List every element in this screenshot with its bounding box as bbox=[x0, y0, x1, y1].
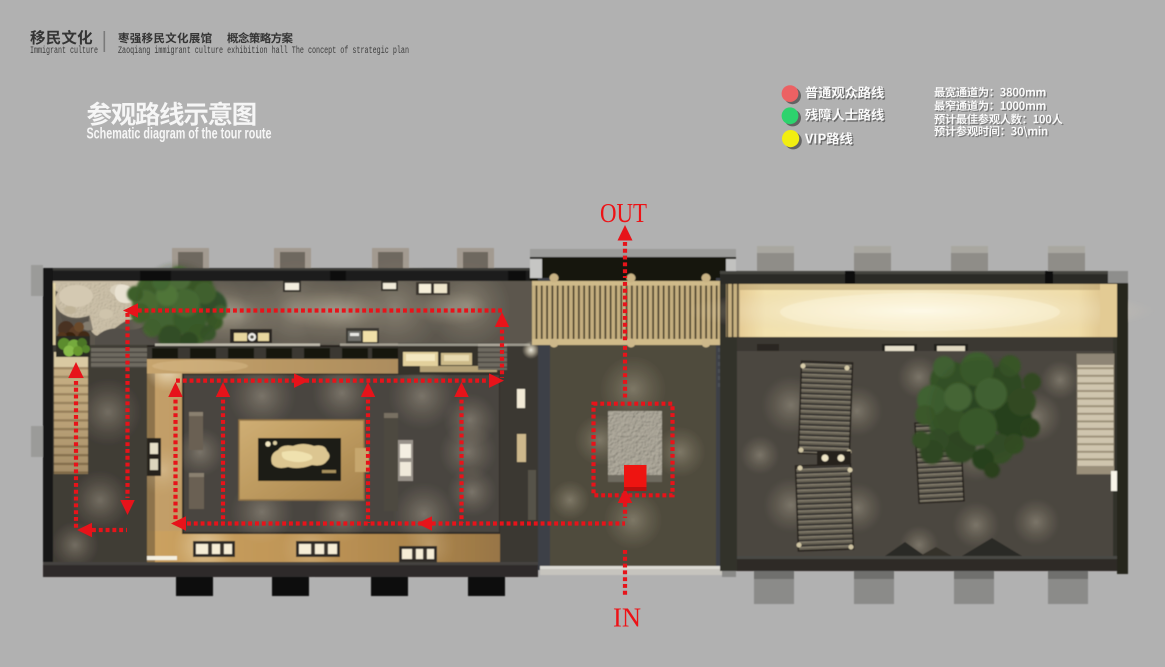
svg-text:Schematic diagram of the tour: Schematic diagram of the tour route bbox=[87, 126, 272, 143]
svg-text:OUT: OUT bbox=[600, 198, 647, 228]
svg-text:Zaoqiang immigrant culture exh: Zaoqiang immigrant culture exhibition ha… bbox=[118, 45, 409, 57]
svg-text:IN: IN bbox=[613, 603, 641, 633]
svg-text:Immigrant culture: Immigrant culture bbox=[30, 45, 98, 57]
